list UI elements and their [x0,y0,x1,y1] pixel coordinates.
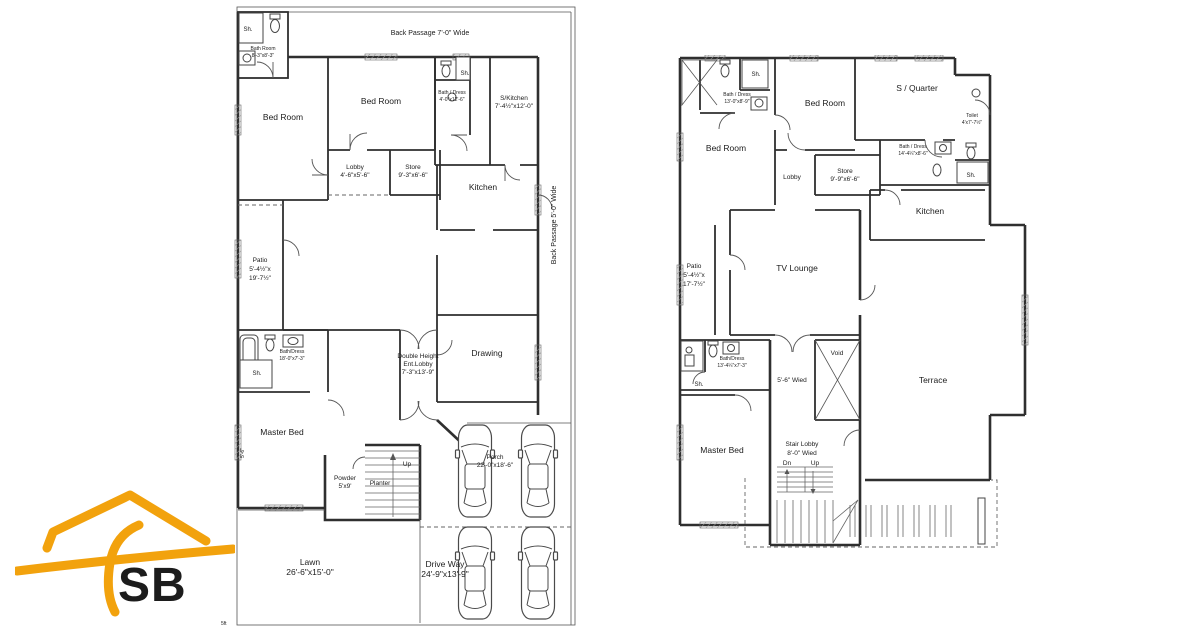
bed-room-label: Bed Room [361,96,401,106]
lobby-label: Lobby [346,164,364,171]
shower-label: Sh. [966,173,975,179]
bath-dress-master-dims: 18'-0"x7'-3" [279,356,304,362]
scale-mark: 5ft [221,621,227,627]
store-label: Store [405,164,421,171]
shower-label: Sh. [460,71,469,77]
store-label: Store [837,168,853,175]
powder-dims: 5'x9' [339,483,352,490]
corridor-width-label: 5'-6" Wied [777,377,807,384]
bath-room-label: Bath Room [250,46,275,52]
store-dims: 9'-9"x6'-6" [830,176,860,183]
bed-room-label: Bed Room [263,112,303,122]
patio-dims-2: 17'-7½" [683,280,706,288]
exterior-walls [680,58,1025,545]
toilet-dims: 4'x7'-7½" [962,119,983,126]
shower-label: Sh. [694,382,703,388]
s-kitchen-label: S/Kitchen [500,95,528,102]
lobby-label: Lobby [783,174,801,181]
ent-lobby-label-1: Double Height [397,353,438,360]
back-passage-right-label: Back Passage 5'-0" Wide [551,186,558,265]
shower-label: Sh. [252,371,261,377]
lawn-dims: 26'-6"x15'-0" [286,567,334,577]
pergola [745,478,997,547]
bath-dress-label: Bath / Dress [438,90,466,96]
first-floor-plan: Bath / Dress 13'-0"x8'-9" Sh. Bed Room B… [675,55,1030,555]
bath-dress-tl-dims: 13'-0"x8'-9" [724,99,749,105]
bath-dress-tr-dims: 14'-4¼"x8'-6" [898,151,928,157]
kitchen-label: Kitchen [916,206,945,216]
stair-lobby-label: Stair Lobby [786,441,820,448]
up-label: Up [403,461,412,468]
bath-dress-m-label: Bath/Dress [720,356,745,362]
bath-room-dims: 8'-3"x8'-3" [252,53,275,59]
logo-text: SB [118,559,187,612]
terrace-label: Terrace [919,375,948,385]
kitchen-label: Kitchen [469,182,498,192]
master-bed-label: Master Bed [260,427,304,437]
door-arcs [257,62,552,469]
patio-label: Patio [687,263,702,270]
sb-logo: SB [15,485,235,617]
ground-floor-labels: Back Passage 7'-0" Wide Back Passage 5'-… [221,27,558,627]
s-kitchen-dims: 7'-4½"x12'-0" [495,102,534,110]
porch-label: Porch [487,454,504,461]
stair-lobby-dims: 8'-0" Wied [787,450,817,457]
lobby-dims: 4'-6"x5'-6" [340,172,370,179]
patio-label: Patio [253,257,268,264]
toilet-label: Toilet [966,113,978,119]
bath-dress-tr-label: Bath / Dress [899,144,927,150]
drawing-label: Drawing [471,348,502,358]
bath-dress-m-dims: 13'-4¼"x7'-3" [717,363,747,369]
shower-label: Sh. [243,27,252,33]
patio-dims-1: 5'-4½"x [683,271,705,279]
planter-label: Planter [370,480,391,487]
parked-cars [456,425,558,619]
ground-floor-plan: Back Passage 7'-0" Wide Back Passage 5'-… [215,5,585,628]
bath-dress-dims: 4'-0"x12'-6" [439,97,464,103]
back-passage-top-label: Back Passage 7'-0" Wide [391,30,470,37]
ent-lobby-dims: 7'-3"x13'-9" [402,369,435,376]
bath-dress-tl-label: Bath / Dress [723,92,751,98]
s-quarter-label: S / Quarter [896,83,938,93]
bath-dress-master-label: Bath/Dress [280,349,305,355]
lawn-label: Lawn [300,557,321,567]
side-dimension: 5'-6" [240,448,246,458]
first-floor-labels: Bath / Dress 13'-0"x8'-9" Sh. Bed Room B… [683,72,982,467]
dn-label: Dn [783,460,792,467]
patio-dims-2: 19'-7½" [249,274,272,282]
bed-room-label: Bed Room [706,143,746,153]
shower-label: Sh. [751,72,760,78]
staircase [777,467,858,543]
master-bed-label: Master Bed [700,445,744,455]
store-dims: 9'-3"x6'-6" [398,172,428,179]
up-label: Up [811,460,820,467]
patio-dims-1: 5'-4½"x [249,265,271,273]
bed-room-label: Bed Room [805,98,845,108]
drive-way-dims: 24'-9"x13'-9" [421,569,469,579]
ent-lobby-label-2: Ent.Lobby [403,361,433,368]
powder-label: Powder [334,475,357,482]
window-hatches [235,54,541,511]
drive-way-label: Drive Way [426,559,466,569]
tv-lounge-label: TV Lounge [776,263,818,273]
porch-dims: 22'-0"x18'-6" [477,462,514,469]
void-label: Void [831,350,844,357]
